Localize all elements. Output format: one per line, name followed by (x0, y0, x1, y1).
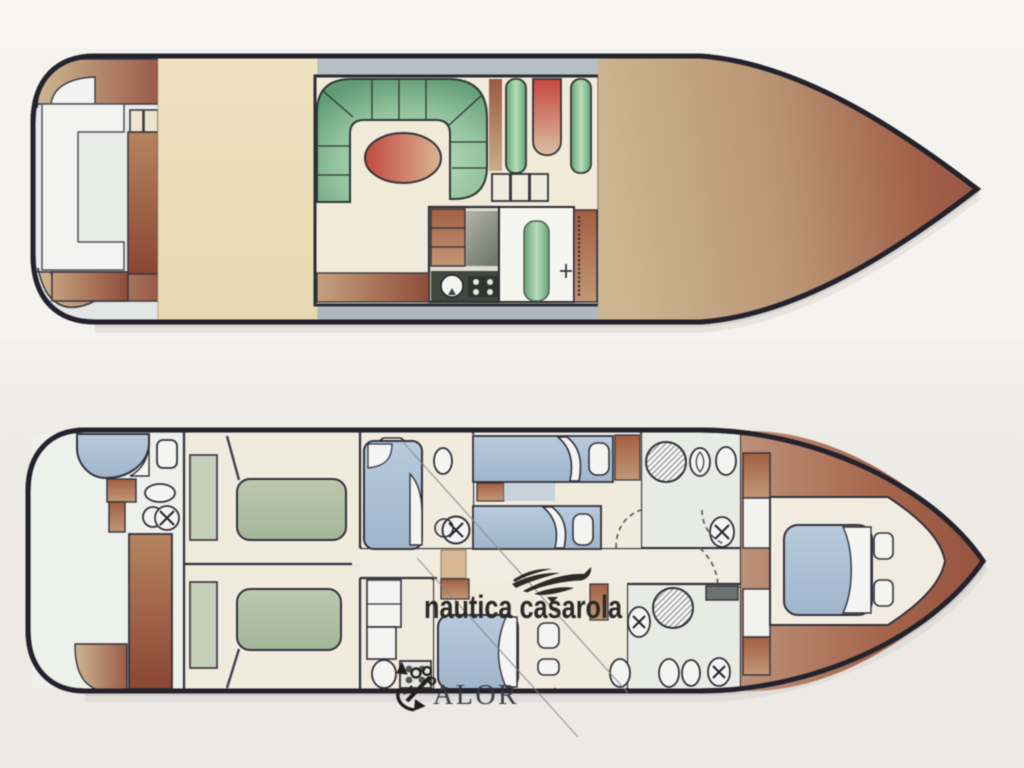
svg-text:nautica casarola: nautica casarola (424, 590, 623, 626)
svg-text:ALOR: ALOR (433, 680, 519, 711)
